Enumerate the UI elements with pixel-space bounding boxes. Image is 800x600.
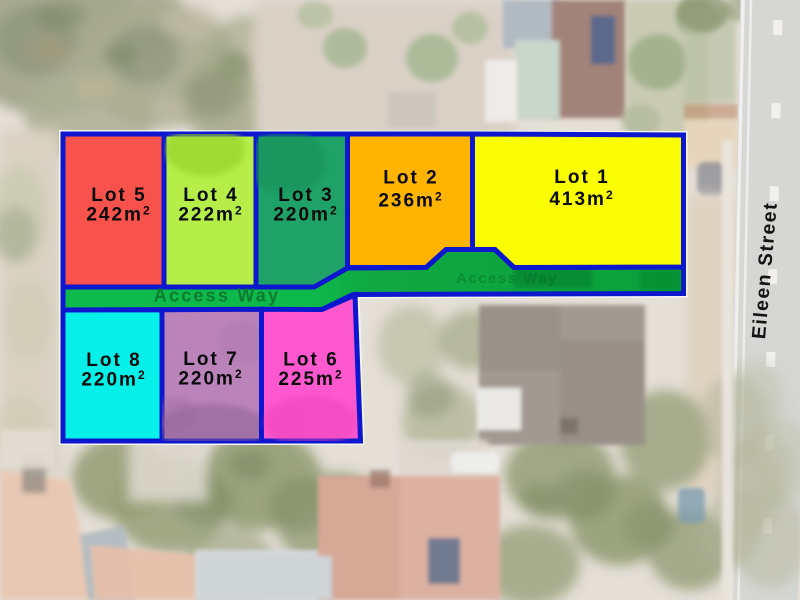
- svg-text:Access Way: Access Way: [154, 286, 280, 306]
- svg-text:222m2: 222m2: [178, 203, 243, 225]
- svg-text:220m2: 220m2: [81, 368, 146, 390]
- svg-text:Access Way: Access Way: [456, 270, 558, 287]
- svg-text:220m2: 220m2: [273, 203, 338, 225]
- svg-text:Lot 3: Lot 3: [278, 185, 333, 206]
- svg-text:Lot 6: Lot 6: [283, 350, 338, 371]
- svg-text:Lot 1: Lot 1: [554, 167, 609, 188]
- svg-text:Lot 2: Lot 2: [383, 168, 438, 189]
- svg-text:225m2: 225m2: [278, 368, 343, 390]
- svg-text:Lot 4: Lot 4: [183, 185, 238, 206]
- svg-text:Lot 8: Lot 8: [86, 350, 141, 371]
- svg-text:Lot 7: Lot 7: [183, 349, 238, 370]
- svg-text:236m2: 236m2: [378, 189, 443, 211]
- svg-text:413m2: 413m2: [549, 188, 614, 210]
- svg-text:Lot 5: Lot 5: [91, 185, 146, 206]
- svg-text:220m2: 220m2: [178, 367, 243, 389]
- svg-text:242m2: 242m2: [86, 203, 151, 225]
